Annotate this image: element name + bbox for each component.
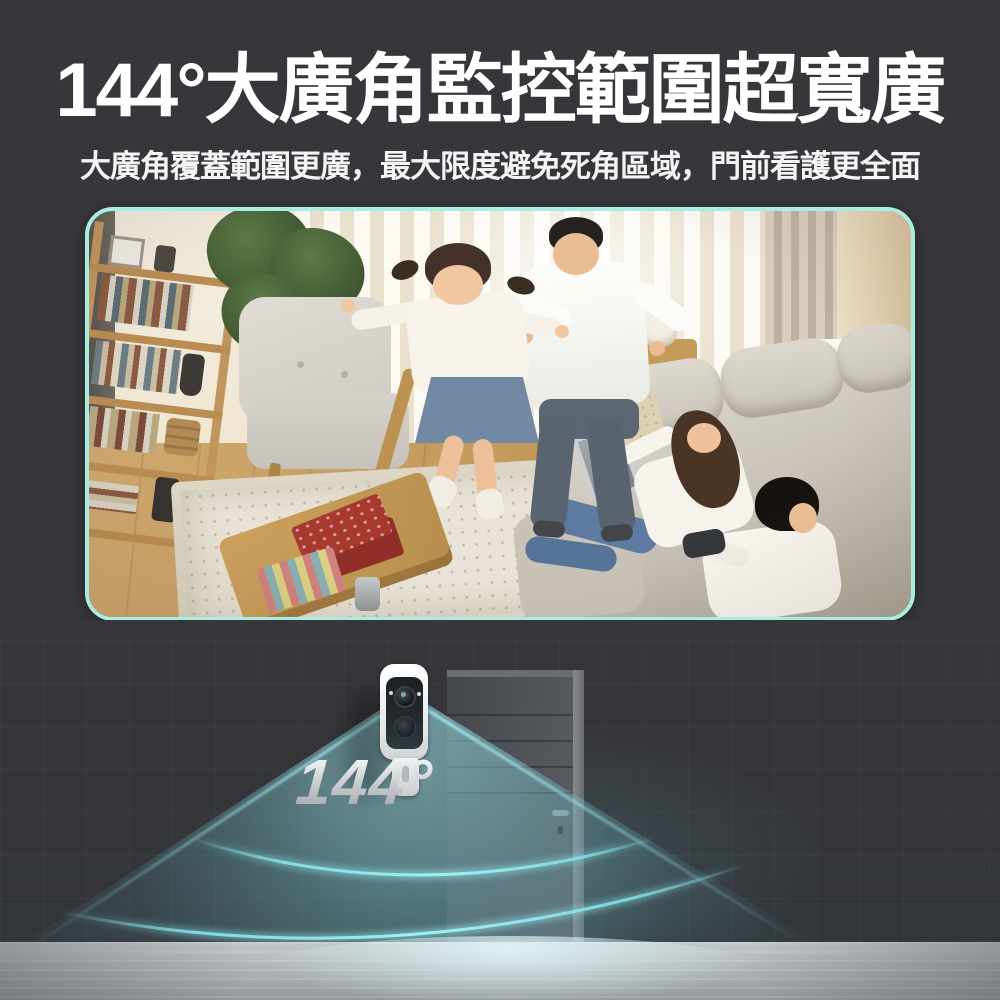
camera-lens-highlight [401,692,406,697]
photo-vignette [89,211,911,617]
camera-led [389,691,393,695]
floor-vignette [0,942,1000,1000]
page-subtitle: 大廣角覆蓋範圍更廣，最大限度避免死角區域，門前看護更全面 [0,141,1000,186]
angle-value-label: 144° [294,750,508,814]
page-title: 144°大廣角監控範圍超寬廣 [0,28,1000,138]
camera-pir-sensor [394,716,416,738]
camera-lens [394,686,416,708]
camera-led [417,692,421,696]
camera-preview-photo [85,207,915,621]
promo-page: 144°大廣角監控範圍超寬廣 大廣角覆蓋範圍更廣，最大限度避免死角區域，門前看護… [0,0,1000,1000]
angle-demo: 144° [0,620,1000,1000]
